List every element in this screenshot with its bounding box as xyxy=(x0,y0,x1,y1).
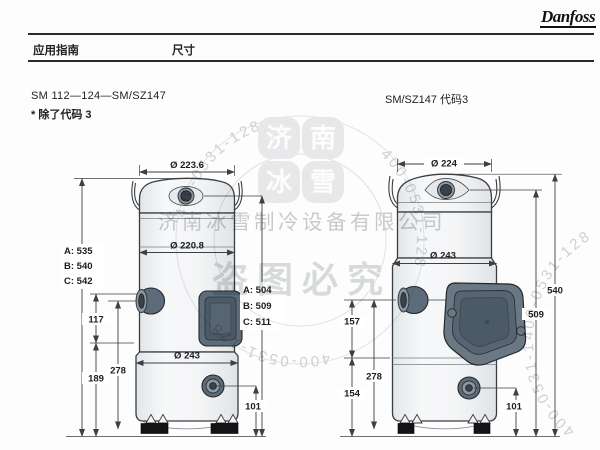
right-dim-101: 101 xyxy=(506,402,523,413)
left-dim-shell-diameter: Ø 220.8 xyxy=(170,241,204,252)
left-dim-278: 278 xyxy=(110,366,126,377)
right-sight-glass-center xyxy=(466,385,473,392)
right-dim-278: 278 xyxy=(366,372,382,383)
right-foot-2 xyxy=(474,424,490,434)
right-spring-hook-right2-icon xyxy=(492,179,497,204)
right-foot-1 xyxy=(398,424,414,434)
right-dim-base-diameter: Ø 243 xyxy=(430,251,456,262)
dimension-drawings: .body-o{fill:url(#shellG);stroke:#383d42… xyxy=(0,0,600,450)
right-dim-157: 157 xyxy=(344,317,360,328)
right-compressor-drawing: Ø 224 Ø 243 540 509 157 154 xyxy=(338,157,569,437)
left-dim-height-c: C: 542 xyxy=(64,276,93,287)
left-spring-hook-left2-icon xyxy=(135,183,140,206)
right-terminal-box-face xyxy=(459,298,509,347)
right-dim-509: 509 xyxy=(528,310,544,321)
left-foot-2 xyxy=(211,424,238,434)
left-terminal-box-face xyxy=(210,303,231,334)
left-dim-base-diameter: Ø 243 xyxy=(174,351,200,362)
left-compressor-drawing: Ø 223.6 Ø 220.8 Ø 243 A: 535 B: 540 C: 5… xyxy=(62,160,284,437)
left-suction-bore xyxy=(139,294,145,308)
left-dim-port-c: C: 511 xyxy=(243,317,272,328)
left-dim-height-b: B: 540 xyxy=(64,261,93,272)
left-dim-101: 101 xyxy=(245,402,262,413)
left-discharge-port-icon xyxy=(181,191,191,201)
left-dim-top-diameter: Ø 223.6 xyxy=(170,160,204,171)
right-box-screw-1-icon xyxy=(448,309,457,318)
right-spring-hook-left2-icon xyxy=(392,179,397,204)
right-box-center-dot-icon xyxy=(485,320,489,324)
right-box-screw-2-icon xyxy=(517,327,526,336)
left-sight-glass-center xyxy=(210,383,217,390)
right-dim-top-diameter: Ø 224 xyxy=(431,159,458,170)
right-dim-154: 154 xyxy=(344,389,361,400)
right-suction-bore xyxy=(401,292,407,307)
left-dim-height-a: A: 535 xyxy=(64,246,93,257)
left-dim-117: 117 xyxy=(88,315,103,326)
right-discharge-port-icon xyxy=(440,184,451,195)
right-dim-540: 540 xyxy=(547,286,563,297)
left-dim-189: 189 xyxy=(88,374,104,385)
left-dim-port-b: B: 509 xyxy=(243,301,272,312)
left-dim-port-a: A: 504 xyxy=(243,285,272,296)
left-spring-hook-right2-icon xyxy=(235,183,240,206)
left-foot-1 xyxy=(141,424,168,434)
